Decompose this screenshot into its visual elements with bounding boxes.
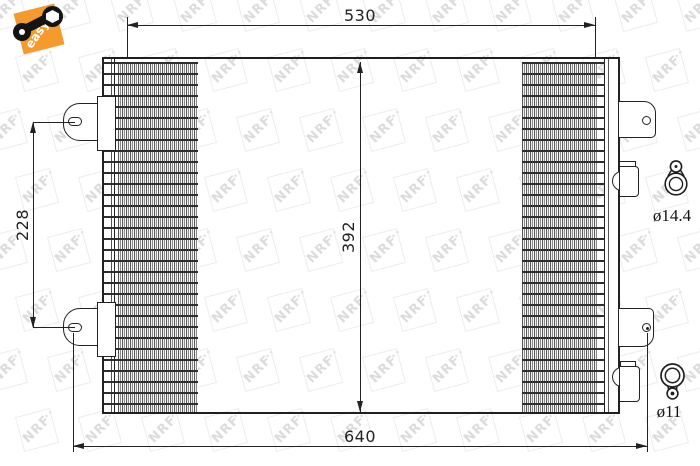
- nrf-watermark-tile: ••NRF: [458, 290, 498, 330]
- nrf-watermark-tile: ••NRF: [206, 410, 246, 450]
- nrf-watermark-tile: ••NRF: [427, 230, 467, 270]
- nrf-watermark-tile: ••NRF: [458, 50, 498, 90]
- nrf-watermark-tile: ••NRF: [238, 230, 278, 270]
- nrf-watermark-tile: ••NRF: [17, 290, 57, 330]
- nrf-watermark-tile: ••NRF: [521, 410, 561, 450]
- arrowhead-left-icon: [73, 443, 84, 449]
- nrf-watermark-tile: ••NRF: [616, 230, 656, 270]
- arrowhead-right-icon: [584, 22, 595, 28]
- top-right-bracket-hole: [642, 116, 651, 125]
- extension-line: [34, 327, 75, 328]
- fitting-top-diameter-label: ø14.4: [644, 206, 700, 226]
- nrf-watermark-tile: ••NRF: [679, 0, 700, 30]
- nrf-watermark-tile: ••NRF: [269, 170, 309, 210]
- arrowhead-down-icon: [357, 401, 363, 412]
- dimension-label-total-width: 640: [330, 427, 390, 446]
- nrf-watermark-tile: ••NRF: [332, 50, 372, 90]
- nrf-watermark-tile: ••NRF: [301, 230, 341, 270]
- nrf-watermark-tile: ••NRF: [238, 350, 278, 390]
- bracket-hole-center-dot: [646, 327, 649, 330]
- nrf-watermark-tile: ••NRF: [301, 110, 341, 150]
- nrf-watermark-tile: ••NRF: [647, 50, 687, 90]
- fitting-diameter-bottom-icon: [659, 361, 686, 403]
- nrf-watermark-tile: ••NRF: [49, 230, 89, 270]
- nrf-watermark-tile: ••NRF: [206, 170, 246, 210]
- top-pipe-connector: [619, 166, 639, 197]
- nrf-watermark-tile: ••NRF: [206, 290, 246, 330]
- nrf-watermark-tile: ••NRF: [80, 410, 120, 450]
- nrf-watermark-tile: ••NRF: [584, 410, 624, 450]
- nrf-watermark-tile: ••NRF: [17, 410, 57, 450]
- nrf-watermark-tile: ••NRF: [427, 350, 467, 390]
- nrf-watermark-tile: ••NRF: [616, 0, 656, 30]
- right-tube-stubs: [597, 62, 605, 412]
- fitting-diameter-top-icon: [663, 158, 690, 200]
- arrowhead-up-icon: [357, 62, 363, 73]
- nrf-watermark-tile: ••NRF: [427, 110, 467, 150]
- nrf-watermark-tile: ••NRF: [364, 350, 404, 390]
- nrf-watermark-tile: ••NRF: [679, 110, 700, 150]
- nrf-watermark-tile: ••NRF: [269, 410, 309, 450]
- arrowhead-up-icon: [30, 122, 36, 133]
- easyfit-badge: easyfit: [8, 0, 80, 72]
- nrf-watermark-tile: ••NRF: [143, 410, 183, 450]
- nrf-watermark-tile: ••NRF: [206, 50, 246, 90]
- nrf-watermark-tile: ••NRF: [332, 290, 372, 330]
- dimension-line-530: [127, 25, 595, 26]
- condenser-technical-drawing: ••NRF••NRF••NRF••NRF••NRF••NRF••NRF••NRF…: [0, 0, 700, 466]
- wrench-ring-hole: [19, 29, 25, 35]
- nrf-watermark-tile: ••NRF: [395, 170, 435, 210]
- dimension-line-392: [360, 62, 361, 412]
- nrf-watermark-tile: ••NRF: [395, 410, 435, 450]
- nrf-watermark-tile: ••NRF: [395, 50, 435, 90]
- nrf-watermark-tile: ••NRF: [269, 290, 309, 330]
- extension-line: [647, 333, 648, 452]
- top-left-mount-plate: [97, 96, 116, 151]
- wrench-ring-icon: [13, 23, 31, 41]
- nrf-watermark-tile: ••NRF: [458, 410, 498, 450]
- dimension-label-height: 392: [339, 207, 359, 267]
- nrf-watermark-tile: ••NRF: [332, 170, 372, 210]
- dimension-label-mount-spacing: 228: [13, 195, 33, 255]
- nrf-watermark-tile: ••NRF: [395, 290, 435, 330]
- arrowhead-down-icon: [30, 317, 36, 328]
- right-fin-core: [522, 62, 597, 412]
- arrowhead-left-icon: [127, 22, 138, 28]
- nrf-watermark-tile: ••NRF: [679, 230, 700, 270]
- nrf-watermark-tile: ••NRF: [301, 350, 341, 390]
- extension-line: [34, 122, 75, 123]
- arrowhead-right-icon: [636, 443, 647, 449]
- nrf-watermark-tile: ••NRF: [364, 110, 404, 150]
- nrf-watermark-tile: ••NRF: [0, 110, 26, 150]
- nrf-watermark-tile: ••NRF: [364, 230, 404, 270]
- nrf-watermark-tile: ••NRF: [458, 170, 498, 210]
- dimension-label-top-width: 530: [330, 6, 390, 25]
- left-fin-core: [118, 62, 198, 412]
- bottom-left-mount-plate: [97, 302, 116, 357]
- extension-line: [73, 333, 74, 452]
- dimension-line-228: [33, 122, 34, 328]
- nrf-watermark-tile: ••NRF: [238, 110, 278, 150]
- nrf-watermark-tile: ••NRF: [49, 350, 89, 390]
- bottom-right-bracket-hole: [642, 323, 651, 332]
- nrf-watermark-tile: ••NRF: [0, 350, 26, 390]
- dimension-line-640: [73, 446, 647, 447]
- nrf-watermark-tile: ••NRF: [269, 50, 309, 90]
- bottom-pipe-connector: [619, 366, 640, 402]
- condenser-top-edge: [102, 57, 620, 59]
- extension-line: [595, 17, 596, 58]
- condenser-bottom-edge: [102, 412, 620, 414]
- right-tank-inner-wall: [608, 57, 609, 414]
- fitting-bottom-diameter-label: ø11: [647, 402, 691, 422]
